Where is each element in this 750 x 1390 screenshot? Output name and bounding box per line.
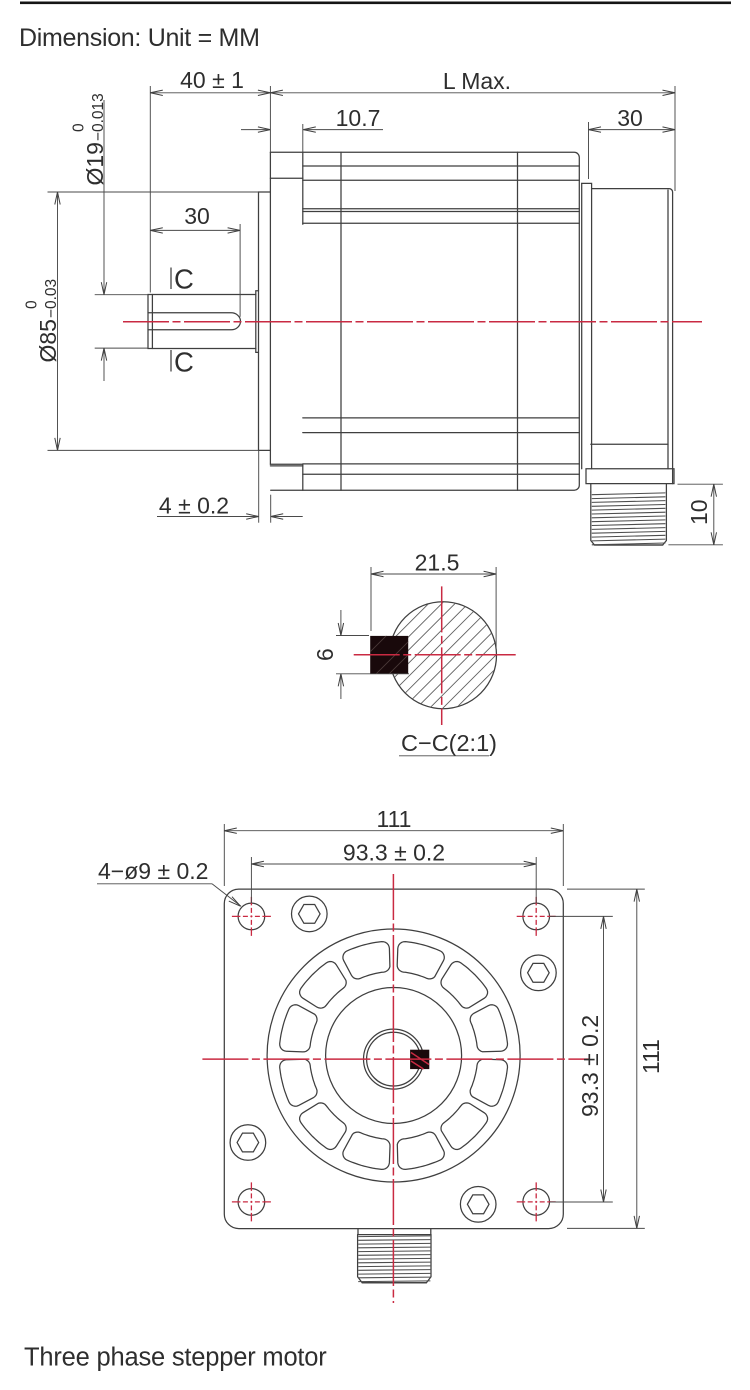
svg-text:L Max.: L Max. <box>443 68 511 94</box>
svg-text:111: 111 <box>638 1039 664 1074</box>
svg-text:40 ± 1: 40 ± 1 <box>180 67 244 93</box>
svg-text:C: C <box>174 347 194 378</box>
svg-text:Ø85−0.030: Ø85−0.030 <box>24 279 62 363</box>
svg-text:C−C(2:1): C−C(2:1) <box>401 730 497 756</box>
svg-text:30: 30 <box>184 203 210 229</box>
svg-text:10.7: 10.7 <box>336 105 381 131</box>
svg-text:Dimension: Unit = MM: Dimension: Unit = MM <box>19 24 260 52</box>
svg-text:30: 30 <box>617 105 643 131</box>
svg-text:Three phase stepper motor: Three phase stepper motor <box>24 1344 327 1372</box>
svg-text:93.3 ± 0.2: 93.3 ± 0.2 <box>343 840 445 866</box>
svg-text:4 ± 0.2: 4 ± 0.2 <box>159 493 229 519</box>
svg-text:93.3 ± 0.2: 93.3 ± 0.2 <box>577 1015 603 1117</box>
svg-text:111: 111 <box>377 806 412 832</box>
svg-text:10: 10 <box>686 499 712 525</box>
svg-text:Ø19−0.0130: Ø19−0.0130 <box>71 93 109 185</box>
svg-text:6: 6 <box>312 648 338 661</box>
svg-text:4−ø9 ± 0.2: 4−ø9 ± 0.2 <box>98 858 208 884</box>
svg-text:21.5: 21.5 <box>415 550 460 576</box>
svg-text:C: C <box>174 264 194 295</box>
